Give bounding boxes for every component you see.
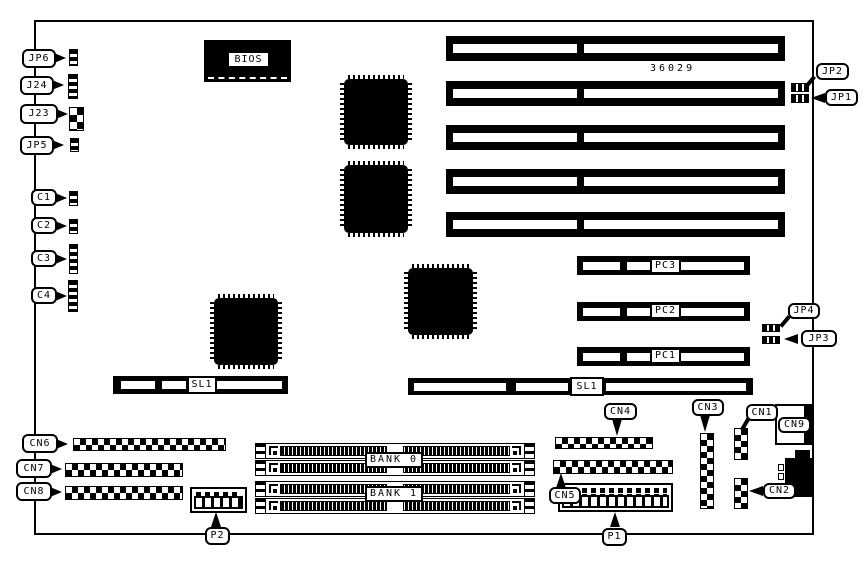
cn2-callout: CN2: [763, 483, 796, 499]
cn7-connector: [65, 463, 183, 477]
cn8-connector: [65, 486, 183, 500]
cn1-callout: CN1: [746, 404, 778, 421]
cn7-callout: CN7: [16, 459, 52, 478]
keyboard-connector-top: [795, 450, 810, 460]
qfp-chip-d: [214, 298, 278, 365]
j23-pointer: [56, 109, 68, 119]
cn6-callout: CN6: [22, 434, 58, 453]
c2-callout: C2: [31, 217, 57, 234]
keyboard-connector-tab-1: [778, 464, 784, 471]
bank0-label: BANK 0: [365, 452, 423, 468]
j24-pointer: [52, 80, 64, 90]
j24-jumper: [68, 74, 78, 99]
cn8-pointer: [50, 487, 62, 497]
sl1-left-label: SL1: [187, 376, 217, 394]
jp6-callout: JP6: [22, 49, 56, 68]
jp4-jumper: [762, 324, 780, 332]
cn3-pointer: [700, 415, 710, 432]
p2-callout: P2: [205, 527, 230, 545]
c3-callout: C3: [31, 250, 57, 267]
j23-jumper: [69, 107, 84, 131]
jp5-jumper: [70, 138, 79, 152]
cn5-pointer: [556, 473, 566, 488]
keyboard-connector-tab-2: [778, 473, 784, 480]
c4-jumper: [68, 280, 78, 312]
cn9-callout: CN9: [778, 417, 811, 433]
cn4-pointer: [612, 419, 622, 436]
cn4-callout: CN4: [604, 403, 637, 420]
cn4-connector: [555, 437, 653, 449]
qfp-chip-c: [408, 268, 473, 335]
cn6-pointer: [56, 439, 68, 449]
j24-callout: J24: [20, 76, 54, 95]
j23-callout: J23: [20, 104, 58, 124]
motherboard-diagram: 36029 BIOS PC3 PC2 PC1: [0, 0, 865, 562]
c2-jumper: [69, 219, 78, 234]
c4-pointer: [55, 291, 67, 301]
c1-callout: C1: [31, 189, 57, 206]
jp6-jumper: [69, 49, 78, 66]
jp2-callout: JP2: [816, 63, 849, 80]
cn6-connector: [73, 438, 226, 451]
qfp-chip-b: [344, 165, 408, 233]
cn1-connector: [734, 428, 748, 460]
jp1-pointer: [811, 93, 825, 103]
cn2-connector: [734, 478, 748, 509]
jp4-callout: JP4: [788, 303, 820, 319]
cn5-callout: CN5: [549, 487, 581, 504]
c1-jumper: [69, 191, 78, 206]
c1-pointer: [55, 193, 67, 203]
jp3-pointer: [784, 334, 798, 344]
cn3-connector: [700, 433, 714, 509]
jp3-callout: JP3: [801, 330, 837, 347]
jp3-jumper: [762, 336, 780, 344]
jp5-pointer: [52, 140, 64, 150]
isa-slot-2: [446, 81, 785, 106]
isa-slot-4: [446, 169, 785, 194]
bank1-label: BANK 1: [365, 486, 423, 502]
c4-callout: C4: [31, 287, 57, 304]
jp5-callout: JP5: [20, 136, 54, 155]
c3-jumper: [69, 244, 78, 274]
pc1-label: PC1: [650, 348, 681, 364]
isa-slot-3: [446, 125, 785, 150]
cn2-pointer: [749, 486, 763, 496]
isa-slot-1: [446, 36, 785, 61]
p1-callout: P1: [602, 528, 627, 546]
c2-pointer: [55, 221, 67, 231]
p2-pointer: [211, 512, 221, 527]
jp6-pointer: [54, 53, 66, 63]
qfp-chip-a: [344, 79, 408, 145]
cn3-callout: CN3: [692, 399, 724, 416]
sl1-right-label: SL1: [570, 377, 604, 396]
cn7-pointer: [50, 464, 62, 474]
pc2-label: PC2: [650, 303, 681, 319]
cn8-callout: CN8: [16, 482, 52, 501]
jp1-callout: JP1: [825, 89, 858, 106]
p2-connector: [190, 487, 247, 513]
pc3-label: PC3: [650, 258, 681, 274]
c3-pointer: [55, 254, 67, 264]
bios-label: BIOS: [227, 51, 270, 68]
cn5-connector: [553, 460, 673, 474]
part-number: 36029: [650, 64, 700, 75]
bios-chip-dash: [208, 77, 287, 79]
isa-slot-5: [446, 212, 785, 237]
p1-pointer: [610, 512, 620, 527]
jp1-jumper: [791, 94, 809, 103]
